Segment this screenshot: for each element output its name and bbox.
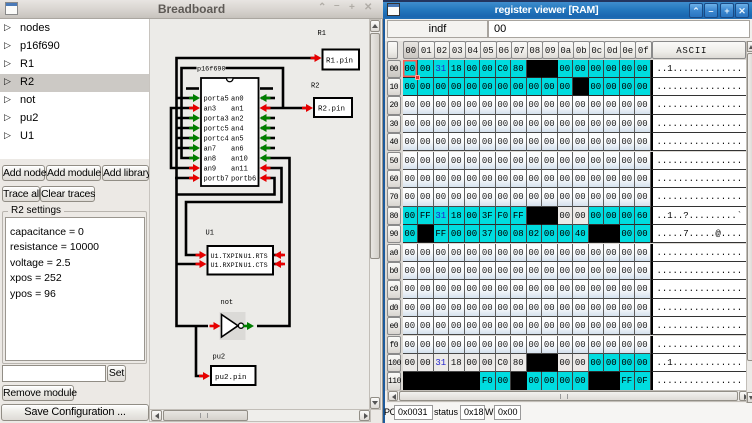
svg-text:an3: an3	[204, 106, 217, 114]
svg-text:porta5: porta5	[204, 96, 229, 104]
svg-text:U1: U1	[206, 230, 214, 238]
svg-text:pu2: pu2	[213, 354, 226, 362]
svg-text:R2: R2	[311, 83, 319, 91]
svg-text:an1: an1	[231, 106, 244, 114]
svg-text:an4: an4	[231, 126, 244, 134]
svg-text:R1.pin: R1.pin	[326, 58, 353, 66]
svg-text:not: not	[221, 299, 234, 307]
svg-text:U1.TXPIN: U1.TXPIN	[211, 253, 243, 261]
svg-text:an9: an9	[204, 166, 217, 174]
svg-text:an8: an8	[204, 156, 217, 164]
svg-text:an10: an10	[231, 156, 248, 164]
svg-text:an6: an6	[231, 146, 244, 154]
svg-text:U1.CTS: U1.CTS	[244, 262, 268, 270]
svg-text:an5: an5	[231, 136, 244, 144]
svg-text:an7: an7	[204, 146, 217, 154]
svg-text:portb7: portb7	[204, 176, 229, 184]
svg-text:p16f690: p16f690	[197, 66, 226, 74]
svg-text:an2: an2	[231, 116, 244, 124]
svg-text:U1.RTS: U1.RTS	[244, 253, 268, 261]
svg-text:portc4: portc4	[204, 136, 229, 144]
svg-text:porta3: porta3	[204, 116, 229, 124]
svg-text:R1: R1	[318, 30, 326, 38]
svg-text:R2.pin: R2.pin	[318, 106, 345, 114]
svg-text:portb6: portb6	[231, 176, 256, 184]
svg-text:pu2.pin: pu2.pin	[215, 374, 247, 382]
svg-text:an11: an11	[231, 166, 248, 174]
svg-text:U1.RXPIN: U1.RXPIN	[211, 262, 243, 270]
svg-text:portc5: portc5	[204, 126, 229, 134]
svg-text:an0: an0	[231, 96, 244, 104]
